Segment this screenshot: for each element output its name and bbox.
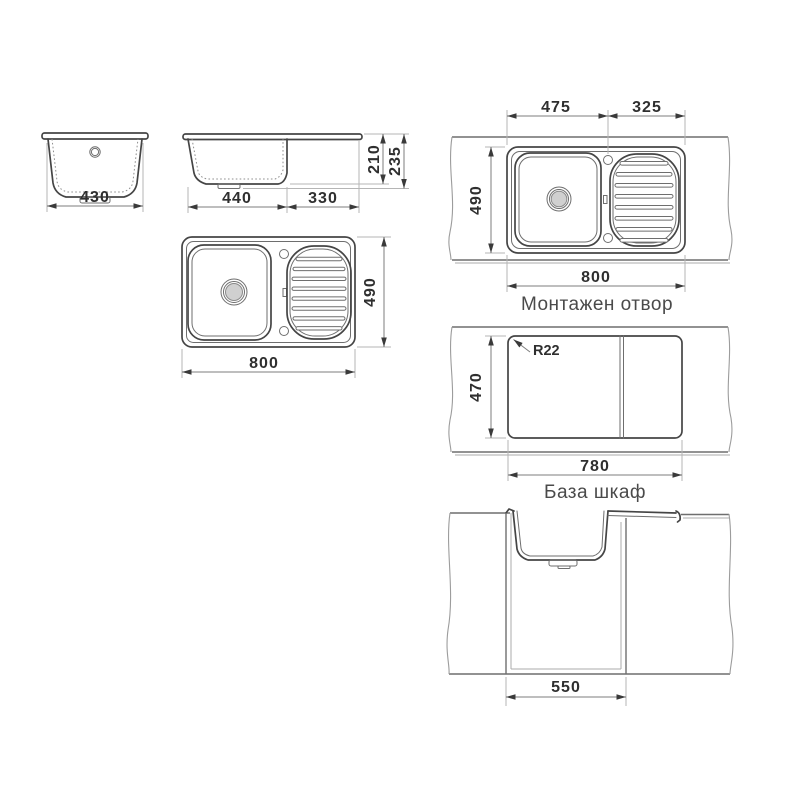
bowl-inner-surface (192, 139, 283, 179)
tap-hole-bottom (280, 327, 289, 336)
dim-mounted-depth: 490 (468, 185, 485, 215)
dim-cabinet-opening: 550 (551, 679, 581, 696)
dim-cutout-width: 780 (580, 458, 610, 475)
sink-rim (42, 133, 148, 139)
break-line-left (449, 137, 453, 260)
radius-leader (514, 340, 531, 353)
cutout-view: R22 470 780 База шкаф (449, 327, 732, 503)
sink-rim (183, 134, 362, 140)
bowl-outline (513, 511, 608, 560)
drain-hole (551, 191, 567, 207)
tap-hole-top (280, 250, 289, 259)
bowl-inner-surface (517, 511, 604, 556)
drain-trap (549, 560, 577, 566)
cabinet-section-view: 550 (447, 509, 733, 706)
break-line-left (447, 513, 451, 674)
cabinet-walls (447, 513, 733, 674)
dim-total-height: 235 (387, 146, 404, 176)
break-line-right (728, 327, 732, 452)
dim-cutout-depth: 470 (468, 372, 485, 402)
dim-side-bowl-width: 440 (222, 190, 252, 207)
dim-top-width: 800 (249, 355, 279, 372)
drawing-sheet: 430 440 330 210 235 (0, 0, 800, 800)
break-line-right (729, 514, 733, 674)
clip-mark (283, 289, 287, 297)
dim-drainer-axis: 325 (632, 99, 662, 116)
dim-bowl-depth: 210 (366, 144, 383, 174)
mounted-view: 475 325 490 800 Монтажен отвор (449, 99, 732, 315)
caption-base-cabinet: База шкаф (544, 482, 646, 503)
top-view: 490 800 (182, 237, 391, 378)
break-line-right (728, 137, 732, 260)
caption-mounting-hole: Монтажен отвор (521, 294, 673, 315)
bowl-outline (188, 139, 287, 184)
sink-technical-drawing: 430 440 330 210 235 (0, 0, 800, 800)
break-line-left (449, 327, 453, 452)
drainer-ribs (292, 257, 346, 330)
dim-corner-radius: R22 (533, 343, 560, 359)
dim-top-depth: 490 (362, 277, 379, 307)
drainer-top (608, 511, 676, 513)
dim-bowl-axis: 475 (541, 99, 571, 116)
drain-hole (226, 284, 243, 301)
front-view: 430 (42, 133, 148, 212)
dim-mounted-width: 800 (581, 269, 611, 286)
side-view: 440 330 210 235 (183, 134, 409, 213)
dim-front-bowl-width: 430 (80, 189, 110, 206)
dim-side-drainer-width: 330 (308, 190, 338, 207)
